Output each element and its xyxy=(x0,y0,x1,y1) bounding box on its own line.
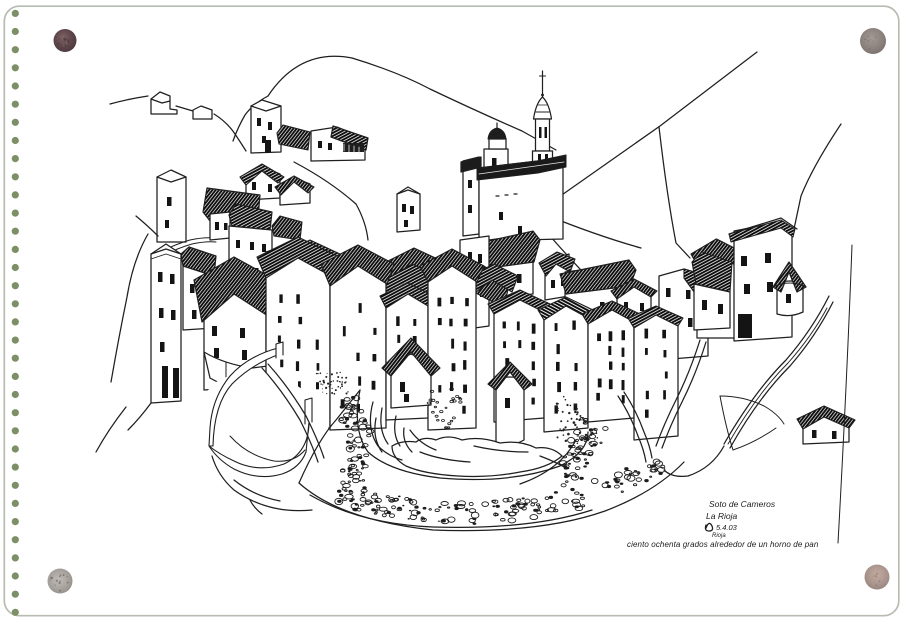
svg-text:Rioja: Rioja xyxy=(712,533,726,539)
svg-text:La Rioja: La Rioja xyxy=(706,511,737,521)
svg-text:Soto de Cameros: Soto de Cameros xyxy=(709,499,776,509)
svg-text:ciento ochenta grados alrededo: ciento ochenta grados alrededor de un ho… xyxy=(627,540,819,549)
svg-text:5.4.03: 5.4.03 xyxy=(716,523,738,532)
